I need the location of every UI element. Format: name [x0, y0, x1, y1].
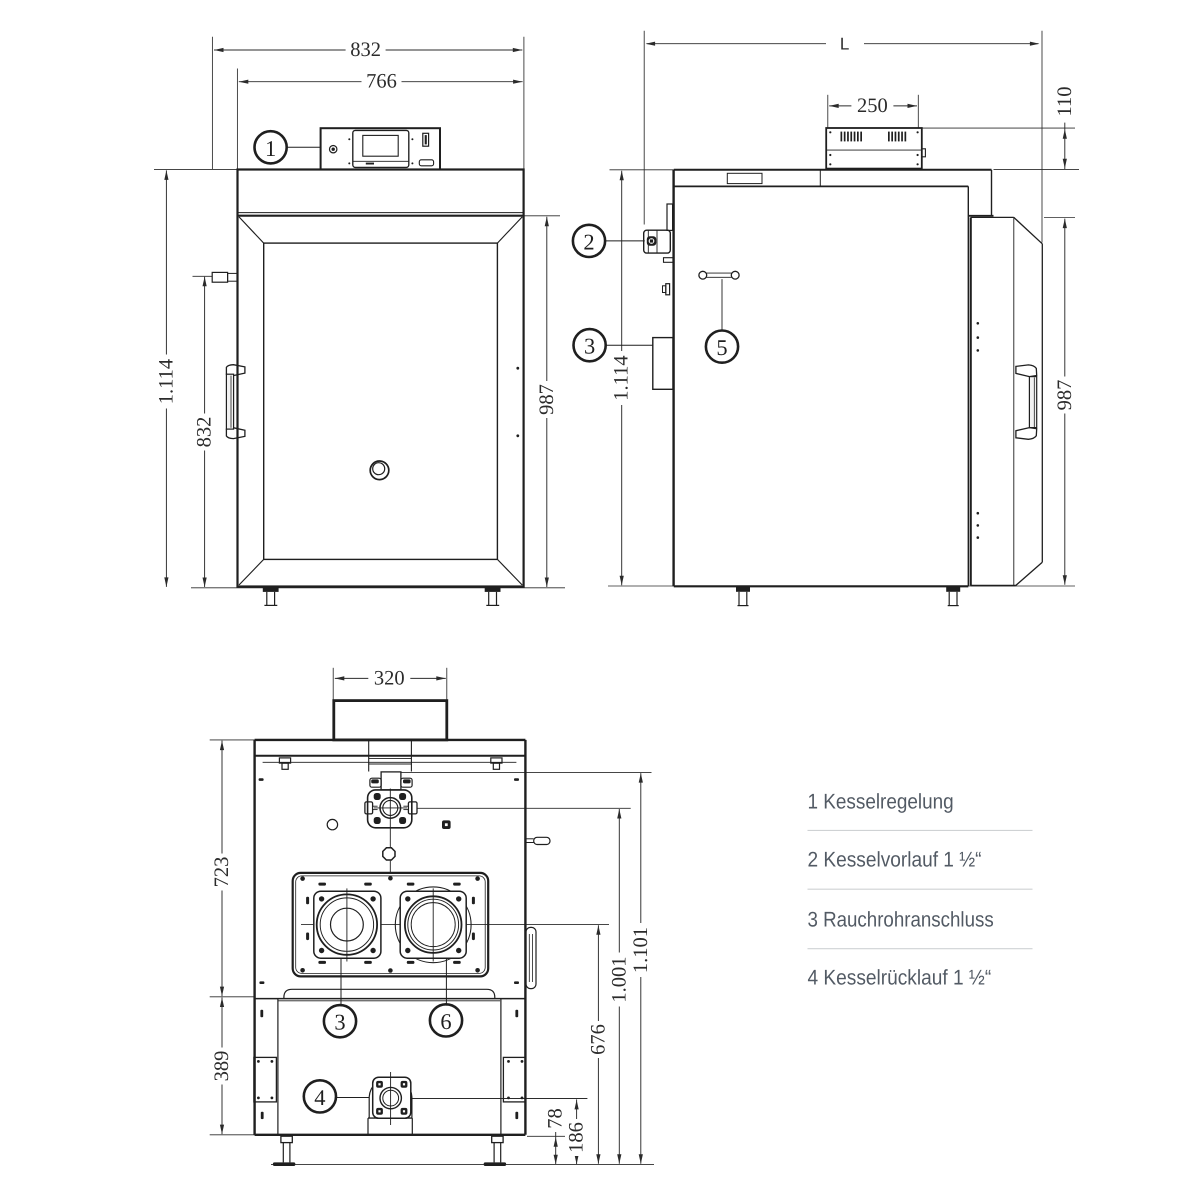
svg-text:3: 3: [334, 1010, 345, 1035]
svg-text:250: 250: [857, 95, 888, 117]
svg-text:1.114: 1.114: [155, 359, 177, 404]
svg-text:1.001: 1.001: [608, 956, 630, 1002]
svg-text:5: 5: [716, 335, 727, 360]
svg-text:723: 723: [211, 857, 233, 888]
svg-text:389: 389: [211, 1051, 233, 1082]
svg-text:78: 78: [545, 1108, 567, 1129]
svg-text:2: 2: [583, 229, 594, 254]
svg-text:3 Rauchrohranschluss: 3 Rauchrohranschluss: [808, 909, 994, 932]
svg-text:832: 832: [350, 39, 381, 61]
svg-text:676: 676: [587, 1024, 609, 1055]
svg-text:1.101: 1.101: [630, 927, 652, 973]
svg-text:4: 4: [314, 1085, 325, 1110]
svg-text:4 Kesselrücklauf 1 ½“: 4 Kesselrücklauf 1 ½“: [808, 967, 992, 990]
svg-text:832: 832: [194, 417, 216, 448]
svg-text:3: 3: [584, 334, 595, 359]
svg-text:1.114: 1.114: [611, 355, 633, 400]
svg-text:2 Kesselvorlauf 1 ½“: 2 Kesselvorlauf 1 ½“: [808, 848, 982, 871]
svg-text:987: 987: [536, 384, 558, 415]
svg-text:1: 1: [265, 136, 276, 161]
svg-text:320: 320: [374, 667, 405, 689]
svg-text:6: 6: [440, 1009, 451, 1034]
svg-text:L: L: [840, 35, 849, 54]
svg-text:110: 110: [1054, 87, 1076, 117]
svg-text:987: 987: [1054, 380, 1076, 411]
svg-text:766: 766: [366, 71, 397, 93]
svg-text:1 Kesselregelung: 1 Kesselregelung: [808, 790, 954, 813]
svg-text:186: 186: [566, 1122, 588, 1153]
